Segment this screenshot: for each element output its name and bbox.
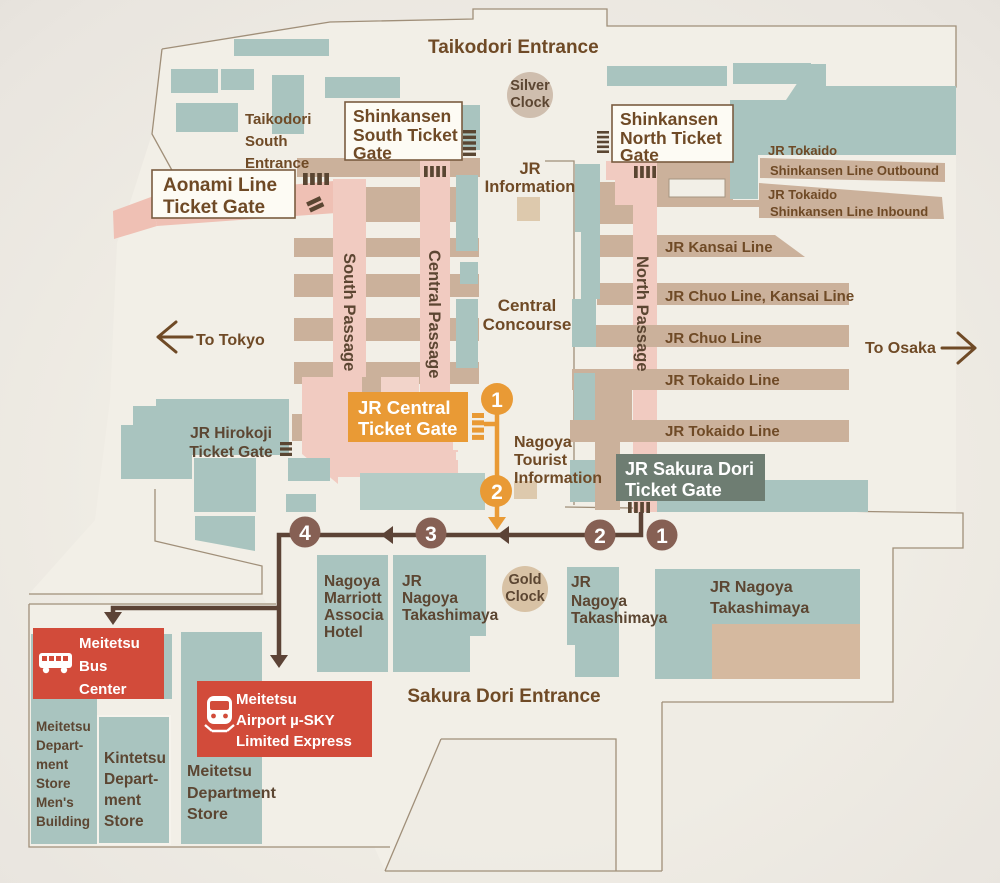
- svg-text:ment: ment: [104, 792, 141, 809]
- svg-text:Gate: Gate: [620, 145, 659, 165]
- svg-text:JR: JR: [571, 574, 591, 591]
- svg-text:Concourse: Concourse: [483, 315, 572, 334]
- svg-text:Gold: Gold: [508, 572, 541, 588]
- svg-text:Ticket Gate: Ticket Gate: [163, 197, 265, 218]
- svg-text:Shinkansen: Shinkansen: [620, 109, 718, 129]
- svg-text:Aonami Line: Aonami Line: [163, 175, 277, 196]
- svg-text:JR Sakura Dori: JR Sakura Dori: [625, 459, 754, 479]
- svg-text:2: 2: [594, 525, 606, 548]
- svg-text:Store: Store: [104, 813, 144, 830]
- svg-text:Clock: Clock: [510, 95, 550, 111]
- svg-text:To Osaka: To Osaka: [865, 340, 936, 357]
- svg-text:Information: Information: [514, 470, 602, 487]
- svg-text:JR Tokaido Line: JR Tokaido Line: [665, 372, 780, 389]
- svg-text:North Passage: North Passage: [633, 256, 651, 372]
- svg-text:Building: Building: [36, 814, 90, 829]
- svg-text:Ticket Gate: Ticket Gate: [189, 444, 273, 461]
- svg-text:Meitetsu: Meitetsu: [236, 691, 297, 708]
- svg-text:Department: Department: [187, 785, 277, 802]
- svg-text:Store: Store: [36, 776, 71, 791]
- svg-text:1: 1: [491, 389, 503, 412]
- svg-text:Sakura Dori Entrance: Sakura Dori Entrance: [407, 686, 600, 707]
- svg-text:Men's: Men's: [36, 795, 74, 810]
- svg-text:JR: JR: [402, 573, 422, 590]
- svg-text:Nagoya: Nagoya: [571, 593, 627, 610]
- svg-text:JR Chuo Line: JR Chuo Line: [665, 330, 762, 347]
- svg-text:Meitetsu: Meitetsu: [36, 719, 91, 734]
- svg-text:Center: Center: [79, 681, 127, 698]
- svg-text:JR Chuo Line, Kansai Line: JR Chuo Line, Kansai Line: [665, 288, 854, 305]
- svg-text:Shinkansen Line Outbound: Shinkansen Line Outbound: [770, 163, 939, 178]
- svg-text:South Passage: South Passage: [340, 253, 358, 371]
- svg-text:Shinkansen Line Inbound: Shinkansen Line Inbound: [770, 204, 928, 219]
- svg-text:2: 2: [491, 481, 503, 504]
- svg-text:To Tokyo: To Tokyo: [196, 332, 265, 349]
- svg-text:JR: JR: [519, 160, 540, 178]
- svg-text:Shinkansen: Shinkansen: [353, 106, 451, 126]
- svg-text:Limited Express: Limited Express: [236, 733, 352, 750]
- svg-text:JR Hirokoji: JR Hirokoji: [190, 425, 272, 442]
- svg-text:Taikodori: Taikodori: [245, 111, 311, 128]
- svg-text:Meitetsu: Meitetsu: [79, 635, 140, 652]
- svg-text:Airport µ-SKY: Airport µ-SKY: [236, 712, 335, 729]
- svg-text:3: 3: [425, 523, 437, 546]
- svg-text:Gate: Gate: [353, 143, 392, 163]
- svg-text:Depart-: Depart-: [104, 771, 158, 788]
- svg-text:JR Nagoya: JR Nagoya: [710, 579, 793, 596]
- svg-text:JR Central: JR Central: [358, 397, 451, 418]
- svg-text:Nagoya: Nagoya: [324, 573, 380, 590]
- svg-text:JR Tokaido: JR Tokaido: [768, 143, 837, 158]
- svg-text:Depart-: Depart-: [36, 738, 83, 753]
- svg-text:Clock: Clock: [505, 589, 545, 605]
- svg-text:Meitetsu: Meitetsu: [187, 763, 252, 780]
- svg-text:Store: Store: [187, 806, 228, 823]
- svg-text:Ticket Gate: Ticket Gate: [358, 418, 457, 439]
- svg-text:Information: Information: [485, 178, 576, 196]
- svg-text:South: South: [245, 133, 288, 150]
- svg-text:Takashimaya: Takashimaya: [710, 600, 809, 617]
- svg-text:Central Passage: Central Passage: [425, 250, 443, 378]
- svg-text:4: 4: [299, 522, 311, 545]
- svg-text:Central: Central: [498, 296, 557, 315]
- svg-text:Hotel: Hotel: [324, 624, 363, 641]
- svg-text:Ticket Gate: Ticket Gate: [625, 480, 722, 500]
- svg-text:ment: ment: [36, 757, 69, 772]
- svg-text:South Ticket: South Ticket: [353, 125, 458, 145]
- svg-text:JR Kansai Line: JR Kansai Line: [665, 239, 773, 256]
- svg-text:Nagoya: Nagoya: [402, 590, 458, 607]
- svg-text:Tourist: Tourist: [514, 452, 568, 469]
- svg-text:Taikodori Entrance: Taikodori Entrance: [428, 37, 599, 58]
- svg-text:Silver: Silver: [510, 78, 550, 94]
- svg-text:Associa: Associa: [324, 607, 384, 624]
- svg-text:Nagoya: Nagoya: [514, 434, 572, 451]
- svg-text:Kintetsu: Kintetsu: [104, 750, 166, 767]
- svg-text:1: 1: [656, 525, 668, 548]
- svg-text:Bus: Bus: [79, 658, 107, 675]
- svg-text:Takashimaya: Takashimaya: [571, 610, 668, 627]
- svg-text:JR Tokaido Line: JR Tokaido Line: [665, 423, 780, 440]
- svg-text:JR Tokaido: JR Tokaido: [768, 187, 837, 202]
- svg-text:Takashimaya: Takashimaya: [402, 607, 499, 624]
- svg-text:Marriott: Marriott: [324, 590, 382, 607]
